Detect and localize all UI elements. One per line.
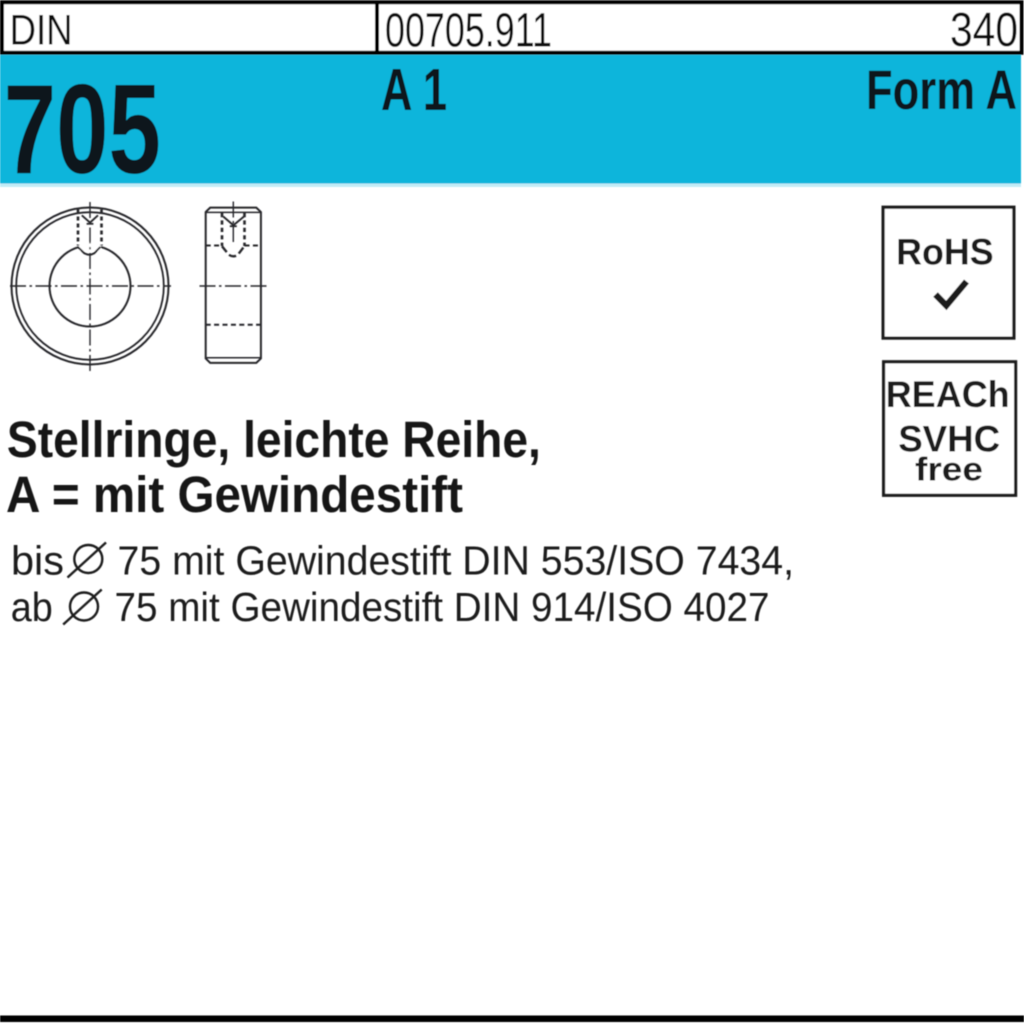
svg-text:free: free [915, 452, 983, 489]
svg-text:RoHS: RoHS [896, 232, 994, 273]
svg-text:ab: ab [11, 584, 53, 630]
svg-text:REACh: REACh [886, 374, 1010, 415]
svg-text:bis: bis [11, 538, 64, 584]
svg-text:A = mit Gewindestift: A = mit Gewindestift [6, 466, 463, 523]
svg-text:705: 705 [4, 58, 161, 200]
svg-text:Form A: Form A [866, 58, 1017, 121]
svg-text:75 mit Gewindestift DIN 914/IS: 75 mit Gewindestift DIN 914/ISO 4027 [115, 584, 770, 630]
svg-text:DIN: DIN [10, 7, 73, 55]
svg-text:340: 340 [950, 4, 1018, 57]
svg-text:00705.911: 00705.911 [385, 5, 552, 58]
svg-text:A 1: A 1 [381, 57, 447, 123]
svg-text:Stellringe, leichte Reihe,: Stellringe, leichte Reihe, [7, 411, 541, 468]
svg-text:75 mit Gewindestift DIN 553/IS: 75 mit Gewindestift DIN 553/ISO 7434, [118, 538, 795, 584]
